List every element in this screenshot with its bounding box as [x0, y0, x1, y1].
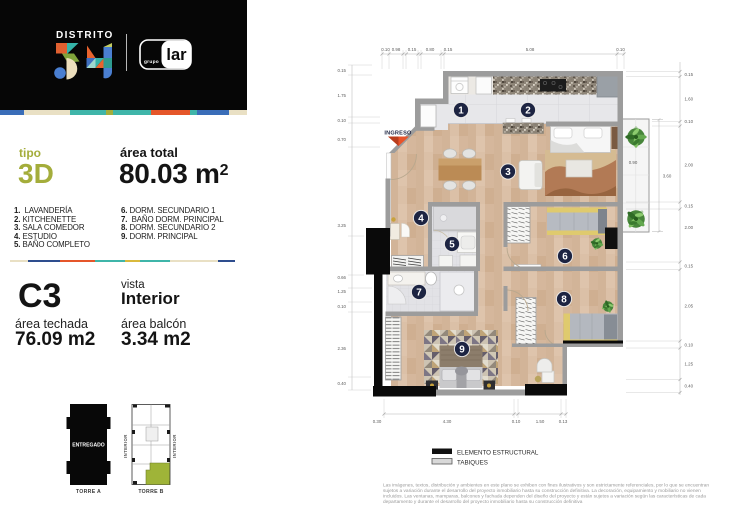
- svg-text:INTERIOR: INTERIOR: [123, 434, 128, 458]
- svg-text:INTERIOR: INTERIOR: [172, 434, 177, 458]
- svg-text:8: 8: [561, 295, 567, 306]
- svg-text:2: 2: [525, 106, 531, 117]
- svg-text:1.50: 1.50: [536, 419, 545, 424]
- svg-text:0.10: 0.10: [337, 118, 346, 123]
- svg-text:0.10: 0.10: [616, 47, 625, 52]
- svg-text:TORRE B: TORRE B: [138, 489, 163, 495]
- svg-text:0.66: 0.66: [337, 275, 346, 280]
- svg-text:incluidos. Las ventanas, mampa: incluidos. Las ventanas, mamparas, balco…: [383, 494, 706, 500]
- svg-text:0.98: 0.98: [392, 47, 401, 52]
- svg-text:sujetos a variación durante el: sujetos a variación durante el desarroll…: [383, 488, 701, 494]
- svg-text:INGRESO: INGRESO: [384, 131, 412, 137]
- svg-text:4.30: 4.30: [443, 419, 452, 424]
- svg-text:ENTREGADO: ENTREGADO: [72, 443, 105, 449]
- svg-text:1: 1: [458, 106, 464, 117]
- svg-text:1.25: 1.25: [685, 362, 694, 367]
- svg-text:6: 6: [562, 252, 568, 263]
- svg-text:0.10: 0.10: [381, 47, 390, 52]
- svg-text:3.25: 3.25: [337, 223, 346, 228]
- svg-text:0.10: 0.10: [512, 419, 521, 424]
- svg-text:0.10: 0.10: [685, 119, 694, 124]
- svg-text:1.75: 1.75: [337, 93, 346, 98]
- svg-text:0.15: 0.15: [408, 47, 417, 52]
- svg-text:0.10: 0.10: [685, 343, 694, 348]
- svg-text:5: 5: [449, 240, 455, 251]
- svg-text:4: 4: [418, 214, 424, 225]
- svg-text:1.60: 1.60: [685, 97, 694, 102]
- svg-text:0.15: 0.15: [685, 264, 694, 269]
- svg-text:Las imágenes, textos, distribu: Las imágenes, textos, distribución y amb…: [383, 483, 709, 489]
- svg-text:0.80: 0.80: [426, 47, 435, 52]
- svg-text:0.13: 0.13: [559, 419, 568, 424]
- svg-text:0.15: 0.15: [685, 204, 694, 209]
- svg-text:9: 9: [459, 345, 465, 356]
- svg-text:2.00: 2.00: [685, 163, 694, 168]
- svg-text:5.08: 5.08: [526, 47, 535, 52]
- svg-text:3: 3: [505, 167, 511, 178]
- svg-text:0.30: 0.30: [373, 419, 382, 424]
- svg-text:0.15: 0.15: [685, 72, 694, 77]
- svg-text:TABIQUES: TABIQUES: [457, 460, 488, 467]
- svg-text:1.25: 1.25: [337, 289, 346, 294]
- svg-text:0.70: 0.70: [337, 137, 346, 142]
- svg-text:2.00: 2.00: [685, 225, 694, 230]
- svg-text:0.15: 0.15: [337, 68, 346, 73]
- svg-text:7: 7: [416, 288, 422, 299]
- svg-text:0.40: 0.40: [685, 384, 694, 389]
- svg-text:departamento y durante el desa: departamento y durante el desarrollo del…: [383, 499, 583, 505]
- svg-text:0.90: 0.90: [629, 160, 638, 165]
- svg-text:3.60: 3.60: [663, 174, 672, 179]
- svg-text:2.36: 2.36: [337, 346, 346, 351]
- svg-text:ELEMENTO ESTRUCTURAL: ELEMENTO ESTRUCTURAL: [457, 450, 539, 457]
- svg-text:0.10: 0.10: [337, 304, 346, 309]
- svg-text:TORRE A: TORRE A: [76, 489, 101, 495]
- svg-text:2.05: 2.05: [685, 304, 694, 309]
- svg-text:0.15: 0.15: [444, 47, 453, 52]
- svg-text:0.40: 0.40: [337, 381, 346, 386]
